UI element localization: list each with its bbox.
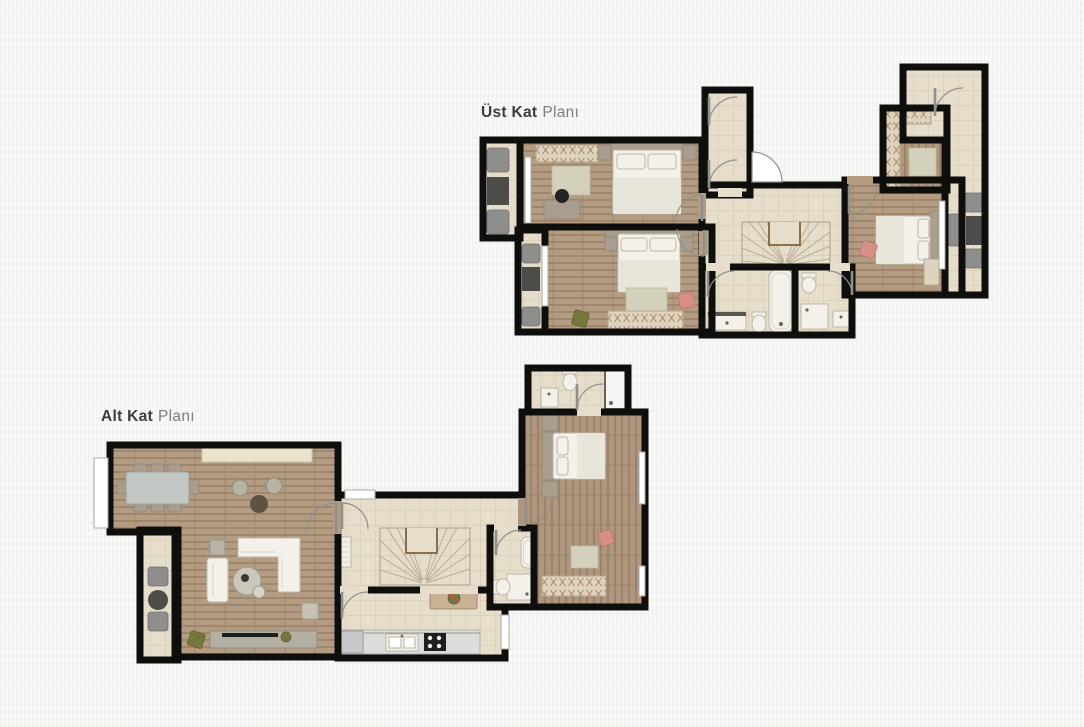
- coffee-table: [232, 480, 248, 496]
- armchair: [522, 244, 540, 263]
- pillow: [650, 238, 676, 251]
- upper-floor-plan: [483, 67, 985, 335]
- nightstand: [681, 237, 693, 251]
- upper-vestibule-floor: [705, 90, 750, 195]
- pillow: [918, 241, 929, 260]
- window: [542, 246, 548, 306]
- nightstand: [605, 237, 617, 251]
- window: [501, 615, 509, 649]
- stair-landing: [406, 528, 437, 553]
- window: [639, 566, 645, 596]
- toilet: [802, 277, 816, 293]
- pillow: [621, 238, 647, 251]
- window: [525, 157, 531, 223]
- lower-balcony-furniture: [148, 567, 168, 631]
- desk-chair: [555, 189, 569, 203]
- upper-bedroom-1: [536, 143, 696, 219]
- upper-balcony-left-furniture: [487, 148, 509, 234]
- bed-duvet: [577, 433, 605, 479]
- coffee-table-dark: [250, 495, 268, 513]
- sink: [541, 388, 558, 407]
- armchair: [522, 307, 540, 326]
- wardrobe: [542, 415, 558, 431]
- upper-balcony-2-furniture: [522, 244, 540, 326]
- pillow: [617, 154, 645, 169]
- wardrobe: [924, 259, 939, 285]
- bed-headboard: [542, 432, 553, 480]
- floor-plan-sheet: { "upper_plan": { "title_bold": "Üst Kat…: [0, 0, 1084, 727]
- bed-duvet: [876, 216, 904, 264]
- window: [345, 490, 375, 499]
- rug: [571, 546, 598, 568]
- bed-duvet: [613, 178, 681, 214]
- armchair: [148, 612, 168, 631]
- pouf: [678, 291, 696, 309]
- nightstand: [598, 145, 611, 160]
- rug: [626, 288, 667, 314]
- balcony-table: [522, 267, 540, 291]
- nightstand: [683, 145, 696, 160]
- pillow: [648, 154, 676, 169]
- stove: [424, 633, 446, 651]
- shower: [801, 304, 828, 329]
- plant: [281, 632, 291, 642]
- round-side-table: [253, 586, 265, 598]
- armchair: [964, 193, 984, 212]
- pouf: [302, 603, 318, 619]
- balcony-table: [148, 590, 168, 610]
- armchair: [487, 148, 509, 172]
- pillow: [557, 437, 568, 455]
- sink: [833, 311, 849, 327]
- wardrobe: [608, 311, 683, 330]
- lower-floor-plan: [94, 368, 645, 660]
- wardrobe: [536, 145, 598, 162]
- wardrobe: [542, 481, 558, 497]
- toilet: [752, 315, 766, 333]
- pillow: [557, 457, 568, 475]
- table-decor: [241, 574, 249, 582]
- entrance-door: [752, 152, 782, 182]
- closet: [885, 111, 931, 124]
- rug: [909, 148, 936, 176]
- coffee-table: [266, 478, 282, 494]
- dining-table: [126, 472, 189, 504]
- wardrobe: [542, 576, 606, 596]
- toilet: [563, 374, 577, 391]
- toilet: [496, 579, 510, 595]
- fridge: [341, 631, 363, 653]
- window: [94, 458, 108, 528]
- side-table: [210, 540, 225, 555]
- floor-plan-canvas: [0, 0, 1084, 727]
- balcony-table: [487, 177, 509, 205]
- armchair: [148, 567, 168, 586]
- window: [639, 452, 645, 504]
- tv: [222, 633, 278, 637]
- loveseat: [207, 558, 228, 602]
- stair-landing: [769, 222, 800, 245]
- armchair: [964, 249, 984, 268]
- pillow: [918, 219, 929, 238]
- shower: [507, 574, 533, 600]
- sideboard: [202, 448, 312, 462]
- bed-duvet: [618, 260, 680, 292]
- armchair: [487, 210, 509, 234]
- window: [939, 201, 945, 269]
